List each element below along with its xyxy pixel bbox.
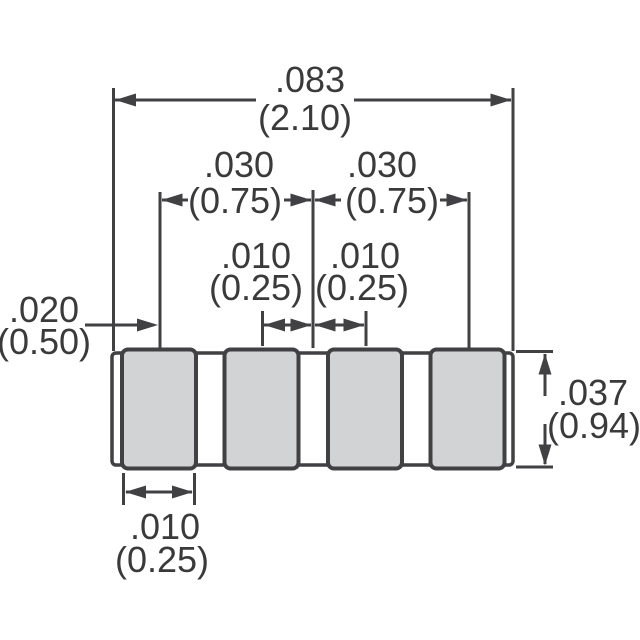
dim-right-gap: .010 (0.25) (315, 235, 410, 332)
dim-label-overall-mm: (2.10) (258, 97, 352, 138)
component (112, 350, 513, 469)
dim-label-right-gap-mm: (0.25) (315, 267, 409, 308)
dim-label-right-pitch-inch: .030 (347, 144, 417, 185)
dim-overall-length: .083 (2.10) (115, 59, 512, 138)
dim-body-height: .037 (0.94) (539, 354, 640, 466)
dim-left-gap: .010 (0.25) (209, 235, 312, 332)
dim-label-end-offset-mm: (0.50) (0, 321, 91, 362)
terminal-pad-4 (431, 350, 505, 469)
dim-label-height-mm: (0.94) (547, 405, 640, 446)
arrowhead-right-icon (172, 486, 193, 499)
arrowhead-left-icon (125, 486, 146, 499)
arrowhead-right-icon (291, 194, 312, 207)
dim-label-left-pitch-mm: (0.75) (188, 180, 282, 221)
arrowhead-right-icon (447, 194, 468, 207)
arrowhead-left-icon (315, 194, 336, 207)
terminal-pad-1 (122, 350, 196, 469)
terminal-pad-3 (328, 350, 402, 469)
arrowhead-down-icon (539, 445, 552, 466)
arrowhead-right-icon (344, 319, 365, 332)
dimension-diagram: .083 (2.10) .030 (0.75) .030 (0.75) .01 (0, 0, 640, 640)
terminal-pad-2 (225, 350, 299, 469)
dim-label-left-pitch-inch: .030 (204, 144, 274, 185)
arrowhead-left-icon (315, 319, 336, 332)
dim-label-left-gap-mm: (0.25) (209, 267, 303, 308)
dim-label-right-pitch-mm: (0.75) (345, 180, 439, 221)
arrowhead-left-icon (115, 94, 136, 107)
arrowhead-right-icon (137, 319, 158, 332)
arrowhead-left-icon (264, 319, 285, 332)
dim-left-pitch: .030 (0.75) (162, 144, 312, 221)
arrowhead-up-icon (539, 354, 552, 375)
arrowhead-right-icon (491, 94, 512, 107)
dim-label-pad-width-mm: (0.25) (115, 539, 209, 580)
dim-right-pitch: .030 (0.75) (315, 144, 468, 221)
dim-label-overall-inch: .083 (275, 59, 345, 100)
drawing-canvas: .083 (2.10) .030 (0.75) .030 (0.75) .01 (0, 0, 640, 640)
arrowhead-right-icon (291, 319, 312, 332)
arrowhead-left-icon (162, 194, 183, 207)
